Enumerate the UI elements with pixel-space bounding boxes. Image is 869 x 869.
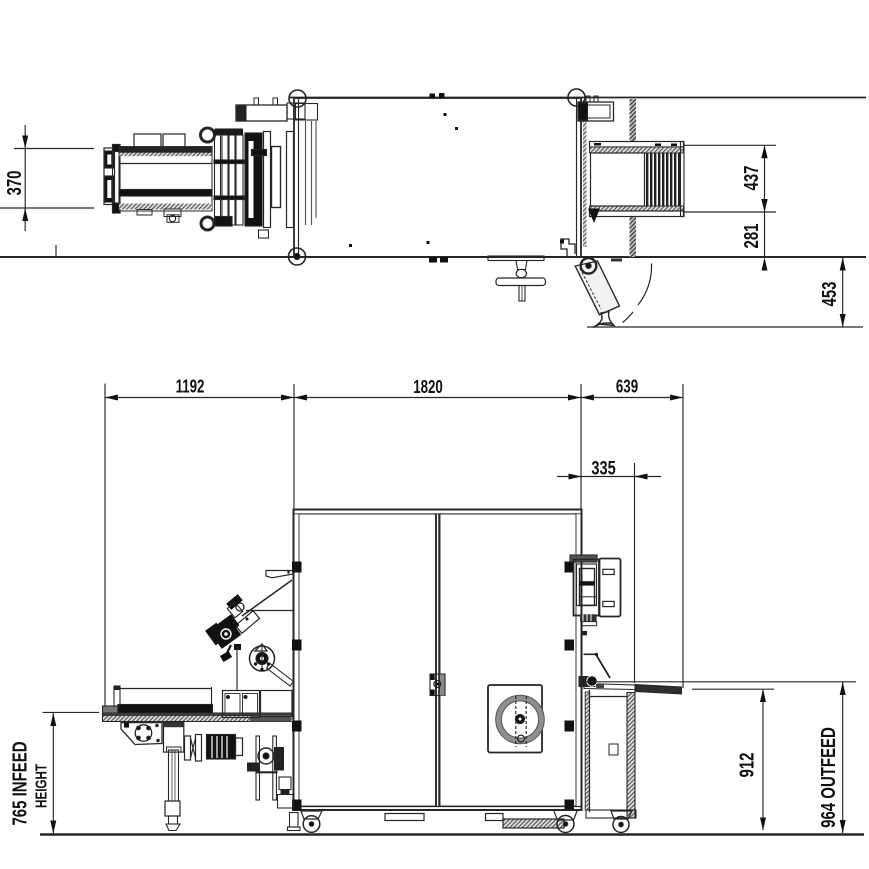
svg-text:370: 370: [3, 170, 26, 195]
svg-text:639: 639: [616, 377, 638, 398]
svg-text:765 INFEED: 765 INFEED: [8, 741, 31, 825]
svg-text:437: 437: [740, 165, 763, 190]
svg-text:1192: 1192: [176, 376, 205, 397]
svg-text:281: 281: [740, 223, 763, 248]
svg-text:1820: 1820: [413, 377, 443, 398]
svg-text:453: 453: [818, 281, 841, 306]
svg-text:HEIGHT: HEIGHT: [33, 764, 50, 808]
svg-text:912: 912: [735, 752, 758, 777]
svg-text:335: 335: [591, 456, 616, 479]
svg-text:964 OUTFEED: 964 OUTFEED: [817, 727, 840, 828]
